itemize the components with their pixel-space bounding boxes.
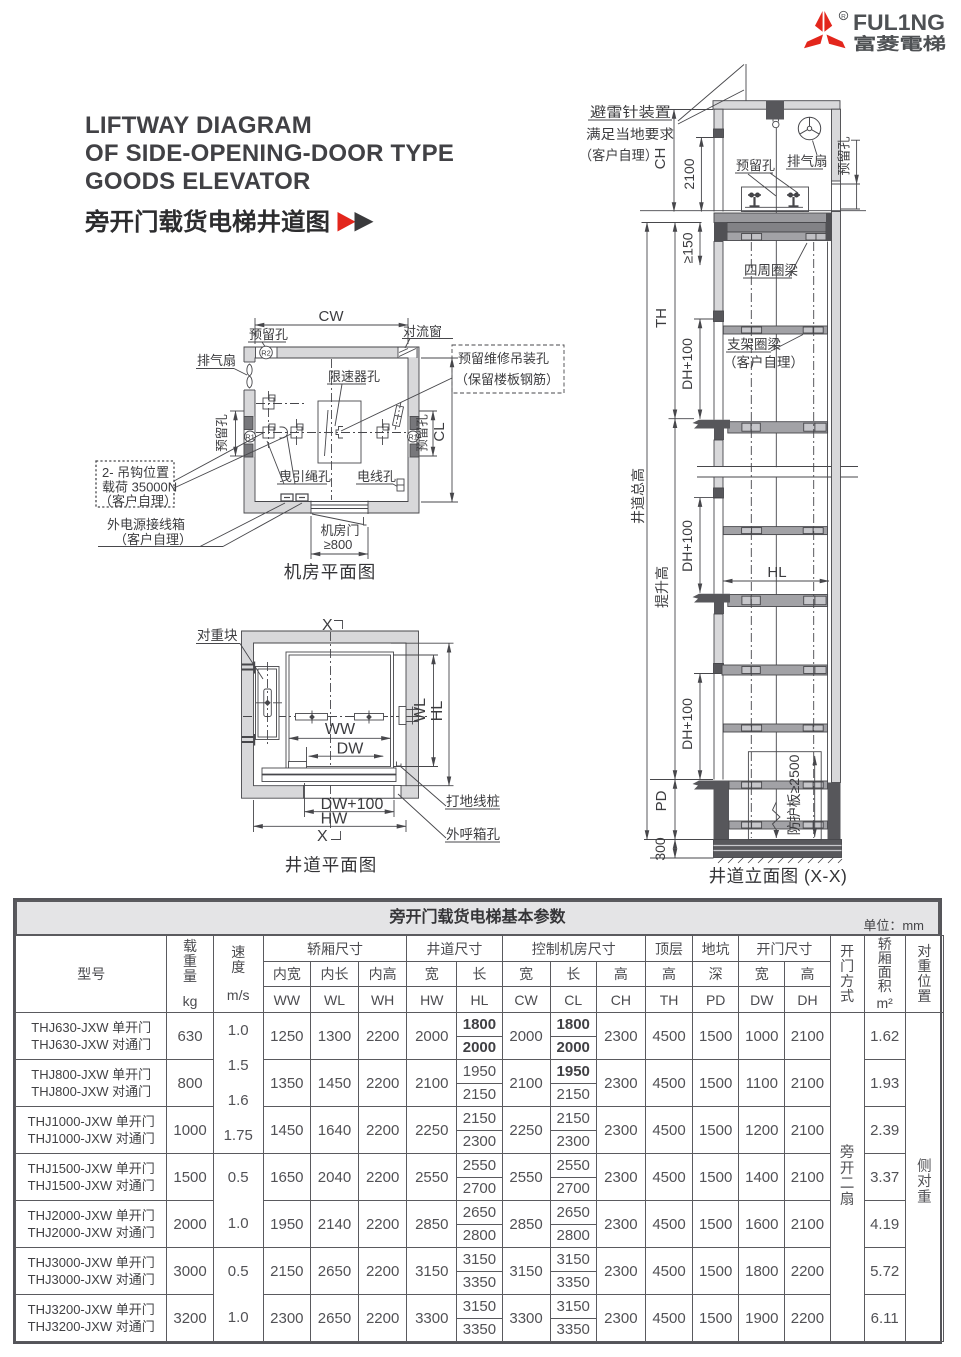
svg-text:机房平面图: 机房平面图 xyxy=(284,562,377,582)
svg-text:300: 300 xyxy=(652,837,668,861)
svg-text:R2: R2 xyxy=(261,349,271,358)
svg-text:井道立面图 (X-X): 井道立面图 (X-X) xyxy=(709,866,848,886)
svg-text:预留孔: 预留孔 xyxy=(416,414,430,452)
svg-text:TH: TH xyxy=(653,308,670,328)
svg-text:DH+100: DH+100 xyxy=(679,338,695,390)
svg-text:X: X xyxy=(317,828,328,845)
svg-text:（保留楼板钢筋）: （保留楼板钢筋） xyxy=(455,372,559,387)
svg-text:DH+100: DH+100 xyxy=(679,520,695,572)
svg-text:满足当地要求: 满足当地要求 xyxy=(586,127,675,142)
svg-text:≥150: ≥150 xyxy=(680,232,696,263)
svg-text:对流窗: 对流窗 xyxy=(403,324,442,339)
svg-text:≥800: ≥800 xyxy=(324,537,353,552)
svg-text:限速器孔: 限速器孔 xyxy=(328,369,380,384)
svg-text:DW: DW xyxy=(337,741,365,758)
svg-text:排气扇: 排气扇 xyxy=(787,154,828,169)
svg-text:载荷 35000N: 载荷 35000N xyxy=(102,480,177,495)
svg-text:预留孔: 预留孔 xyxy=(736,158,775,173)
svg-text:PD: PD xyxy=(653,790,670,811)
svg-text:CH: CH xyxy=(652,148,669,170)
svg-text:打地线桩: 打地线桩 xyxy=(446,793,500,809)
svg-text:避雷针装置: 避雷针装置 xyxy=(590,104,671,120)
svg-text:四周圈梁: 四周圈梁 xyxy=(744,263,798,278)
svg-text:机房门: 机房门 xyxy=(320,523,359,538)
svg-text:预留孔: 预留孔 xyxy=(215,414,229,452)
svg-text:富菱電梯: 富菱電梯 xyxy=(853,34,946,54)
svg-text:电线孔: 电线孔 xyxy=(357,469,396,484)
svg-text:WL: WL xyxy=(412,698,429,722)
svg-text:井道总高: 井道总高 xyxy=(630,468,646,524)
svg-text:2- 吊钩位置: 2- 吊钩位置 xyxy=(102,465,169,480)
svg-text:预留孔: 预留孔 xyxy=(837,136,852,175)
svg-text:FUL1NG: FUL1NG xyxy=(853,10,945,35)
svg-text:预留维修吊装孔: 预留维修吊装孔 xyxy=(458,351,549,366)
svg-text:HW: HW xyxy=(321,811,349,828)
svg-text:曳引绳孔: 曳引绳孔 xyxy=(279,469,331,484)
svg-text:X: X xyxy=(322,617,333,634)
svg-text:井道平面图: 井道平面图 xyxy=(285,855,378,875)
svg-text:提升高: 提升高 xyxy=(654,566,670,608)
svg-text:HL: HL xyxy=(429,701,446,722)
svg-text:GOODS ELEVATOR: GOODS ELEVATOR xyxy=(85,168,311,195)
svg-text:（客户自理）: （客户自理） xyxy=(114,532,192,547)
svg-text:防护板≥2500: 防护板≥2500 xyxy=(786,754,802,835)
svg-text:WW: WW xyxy=(325,721,356,738)
svg-text:OF SIDE-OPENING-DOOR TYPE: OF SIDE-OPENING-DOOR TYPE xyxy=(85,140,454,167)
svg-text:DH+100: DH+100 xyxy=(679,698,695,750)
svg-text:HL: HL xyxy=(767,564,786,581)
svg-text:（客户自理）: （客户自理） xyxy=(99,494,177,509)
svg-text:旁开门载货电梯井道图: 旁开门载货电梯井道图 xyxy=(84,208,330,236)
svg-text:排气扇: 排气扇 xyxy=(197,353,236,368)
svg-text:外呼箱孔: 外呼箱孔 xyxy=(446,827,500,842)
svg-text:外电源接线箱: 外电源接线箱 xyxy=(107,517,185,532)
svg-text:2100: 2100 xyxy=(681,158,697,189)
svg-text:CL: CL xyxy=(431,422,448,441)
svg-text:CW: CW xyxy=(319,308,345,325)
svg-text:（客户自理）: （客户自理） xyxy=(579,147,658,163)
svg-text:对重块: 对重块 xyxy=(197,628,238,643)
svg-text:R: R xyxy=(841,13,846,20)
svg-text:LIFTWAY DIAGRAM: LIFTWAY DIAGRAM xyxy=(85,112,312,139)
svg-text:（客户自理）: （客户自理） xyxy=(723,354,804,370)
